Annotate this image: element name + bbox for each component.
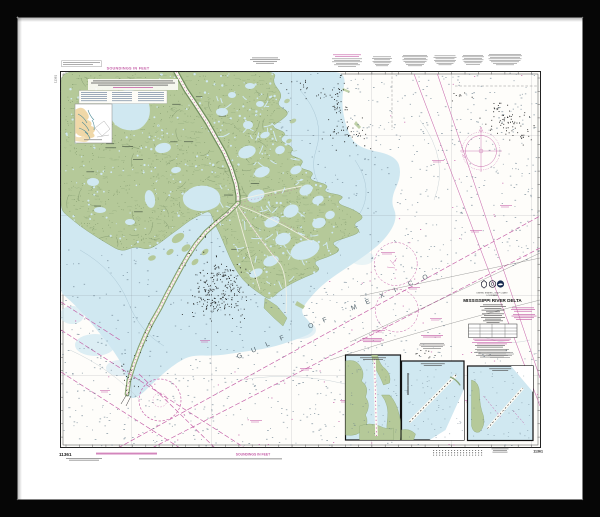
svg-text:11361: 11361 — [59, 452, 72, 457]
svg-text:UNITED STATES - GULF COAST: UNITED STATES - GULF COAST — [476, 291, 508, 294]
svg-text:MISSISSIPPI RIVER DELTA: MISSISSIPPI RIVER DELTA — [463, 298, 522, 303]
svg-text:LOUISIANA: LOUISIANA — [486, 294, 498, 297]
svg-text:11361: 11361 — [533, 449, 543, 453]
svg-text:11361: 11361 — [54, 75, 58, 83]
svg-text:SOUNDINGS IN FEET: SOUNDINGS IN FEET — [107, 67, 150, 71]
svg-text:SOUNDINGS IN FEET: SOUNDINGS IN FEET — [236, 453, 271, 457]
